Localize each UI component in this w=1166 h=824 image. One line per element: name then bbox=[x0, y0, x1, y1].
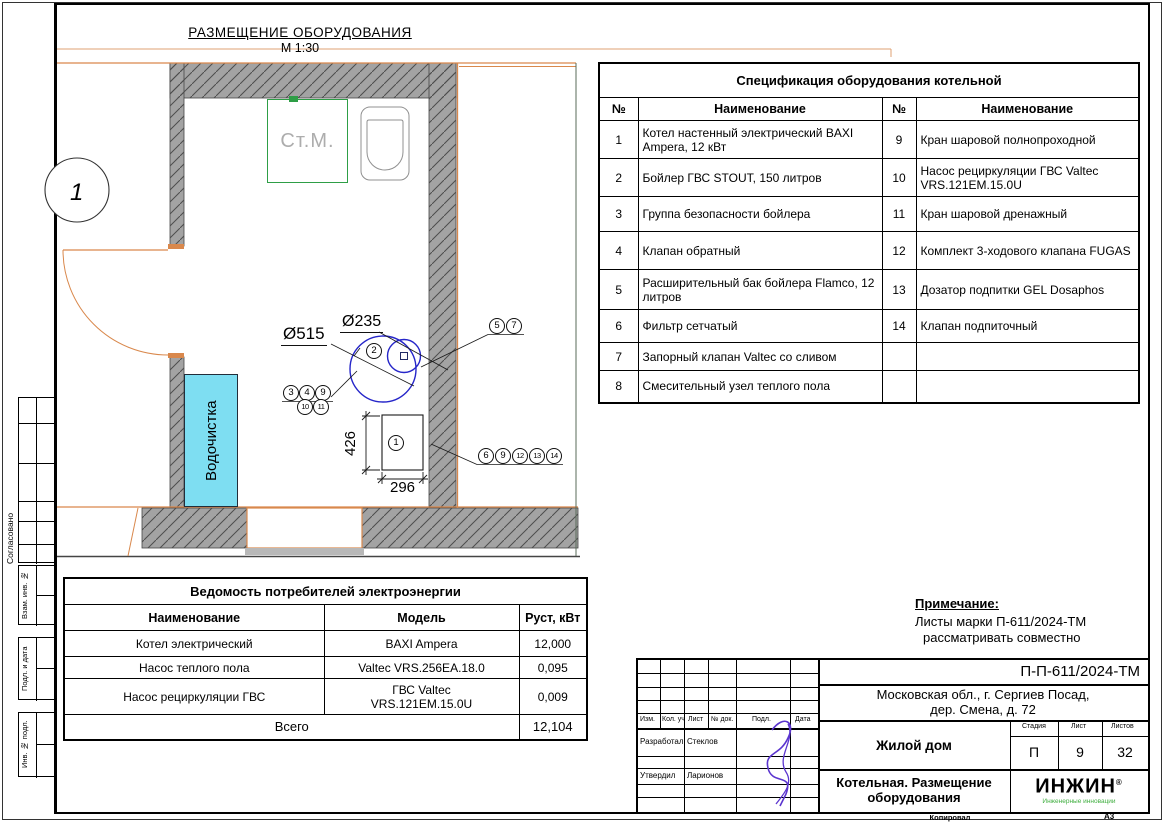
sidebar-label-inv-orig: Инв. № подл. bbox=[20, 714, 33, 775]
logo-subtitle: Инженерные инновации bbox=[1010, 798, 1148, 805]
consumers-table: Ведомость потребителей электроэнергии На… bbox=[63, 577, 588, 741]
spec-col-name2: Наименование bbox=[916, 98, 1139, 121]
developed-name: Стеклов bbox=[687, 737, 718, 746]
consumer-row: Котел электрический BAXI Ampera 12,000 bbox=[64, 631, 587, 657]
col-doc: № док. bbox=[711, 716, 733, 723]
consumer-row: Насос теплого пола Valtec VRS.256EA.18.0… bbox=[64, 657, 587, 679]
sidebar-label-inv-replace: Взам. инв. № bbox=[20, 567, 33, 623]
plan-title-wrap: РАЗМЕЩЕНИЕ ОБОРУДОВАНИЯ М 1:30 bbox=[170, 25, 430, 55]
spec-row: 1Котел настенный электрический BAXI Ampe… bbox=[599, 121, 1139, 159]
callout-14: 14 bbox=[546, 448, 562, 464]
dim-dia-235: Ø235 bbox=[340, 313, 383, 333]
callout-13: 13 bbox=[529, 448, 545, 464]
col-izm: Изм. bbox=[640, 716, 655, 723]
doc-number: П-П-611/2024-ТМ bbox=[818, 663, 1140, 680]
callout-6: 6 bbox=[478, 448, 494, 464]
water-treatment-label: Водочистка bbox=[203, 377, 220, 505]
spec-row: 6Фильтр сетчатый 14Клапан подпиточный bbox=[599, 310, 1139, 343]
address: Московская обл., г. Сергиев Посад, дер. … bbox=[818, 687, 1148, 717]
consumers-table-title: Ведомость потребителей электроэнергии bbox=[64, 578, 587, 605]
spec-row: 2Бойлер ГВС STOUT, 150 литров 10Насос ре… bbox=[599, 159, 1139, 197]
frame-top bbox=[54, 3, 1150, 5]
spec-col-no2: № bbox=[882, 98, 916, 121]
object-name: Жилой дом bbox=[818, 738, 1010, 753]
callout-12: 12 bbox=[512, 448, 528, 464]
spec-table: Спецификация оборудования котельной № На… bbox=[598, 62, 1140, 404]
drawing-sheet: Согласовано Взам. инв. № Подл. и дата Ин… bbox=[0, 0, 1166, 824]
consumer-row: Насос рециркуляции ГВС ГВС ValtecVRS.121… bbox=[64, 679, 587, 715]
company-logo: ИНЖИН® Инженерные инновации bbox=[1010, 773, 1148, 805]
approved-label: Утвердил bbox=[640, 771, 675, 780]
spec-col-name1: Наименование bbox=[638, 98, 882, 121]
spec-col-no1: № bbox=[599, 98, 638, 121]
stage-value: П bbox=[1010, 744, 1058, 760]
sheet-title: Котельная. Размещение оборудования bbox=[818, 775, 1010, 805]
title-block: Изм. Кол. уч Лист № док. Подл. Дата Разр… bbox=[636, 658, 1150, 814]
sheet-label: Лист bbox=[1071, 723, 1086, 730]
dim-296: 296 bbox=[382, 479, 423, 496]
callout-7: 7 bbox=[506, 318, 522, 334]
spec-row: 5Расширительный бак бойлера Flamco, 12 л… bbox=[599, 270, 1139, 310]
developed-label: Разработал bbox=[640, 737, 684, 746]
callout-2: 2 bbox=[366, 343, 382, 359]
callout-9b: 9 bbox=[495, 448, 511, 464]
signature-scribbles bbox=[754, 664, 802, 810]
dim-dia-515: Ø515 bbox=[281, 324, 327, 346]
spec-table-title: Спецификация оборудования котельной bbox=[599, 63, 1139, 98]
copied-label: Копировал bbox=[915, 813, 985, 822]
callout-10: 10 bbox=[297, 399, 313, 415]
note-line2: рассматривать совместно bbox=[915, 630, 1086, 646]
sheets-label: Листов bbox=[1111, 723, 1134, 730]
callout-1: 1 bbox=[388, 435, 404, 451]
col-list: Лист bbox=[688, 716, 703, 723]
callout-5: 5 bbox=[489, 318, 505, 334]
spec-row: 7Запорный клапан Valtec со сливом bbox=[599, 343, 1139, 371]
plan-title: РАЗМЕЩЕНИЕ ОБОРУДОВАНИЯ bbox=[170, 25, 430, 40]
sidebar-label-sig-date: Подл. и дата bbox=[20, 639, 33, 698]
sidebar-grid bbox=[18, 397, 56, 563]
col-kol: Кол. уч bbox=[662, 716, 685, 723]
callout-11: 11 bbox=[313, 399, 329, 415]
sidebar-label-agreed: Согласовано bbox=[5, 508, 17, 568]
spec-row: 8Смесительный узел теплого пола bbox=[599, 371, 1139, 403]
consumer-total-row: Всего 12,104 bbox=[64, 715, 587, 740]
washing-machine-box: Ст.М. bbox=[267, 99, 348, 183]
stage-label: Стадия bbox=[1022, 723, 1046, 730]
machine-tick bbox=[289, 96, 298, 102]
washing-machine-label: Ст.М. bbox=[280, 130, 334, 153]
callout-3: 3 bbox=[283, 385, 299, 401]
spec-row: 4Клапан обратный 12Комплект 3-ходового к… bbox=[599, 232, 1139, 270]
format-label: А3 bbox=[1104, 812, 1114, 821]
sheets-value: 32 bbox=[1102, 744, 1148, 760]
note-line1: Листы марки П-611/2024-ТМ bbox=[915, 614, 1086, 630]
dim-426: 426 bbox=[342, 423, 358, 464]
water-treatment-box: Водочистка bbox=[184, 374, 238, 507]
spec-row: 3Группа безопасности бойлера 11Кран шаро… bbox=[599, 197, 1139, 232]
sheet-value: 9 bbox=[1058, 744, 1102, 760]
plan-scale: М 1:30 bbox=[170, 41, 430, 55]
approved-name: Ларионов bbox=[687, 771, 723, 780]
note: Примечание: Листы марки П-611/2024-ТМ ра… bbox=[915, 596, 1086, 646]
note-title: Примечание: bbox=[915, 596, 1086, 612]
